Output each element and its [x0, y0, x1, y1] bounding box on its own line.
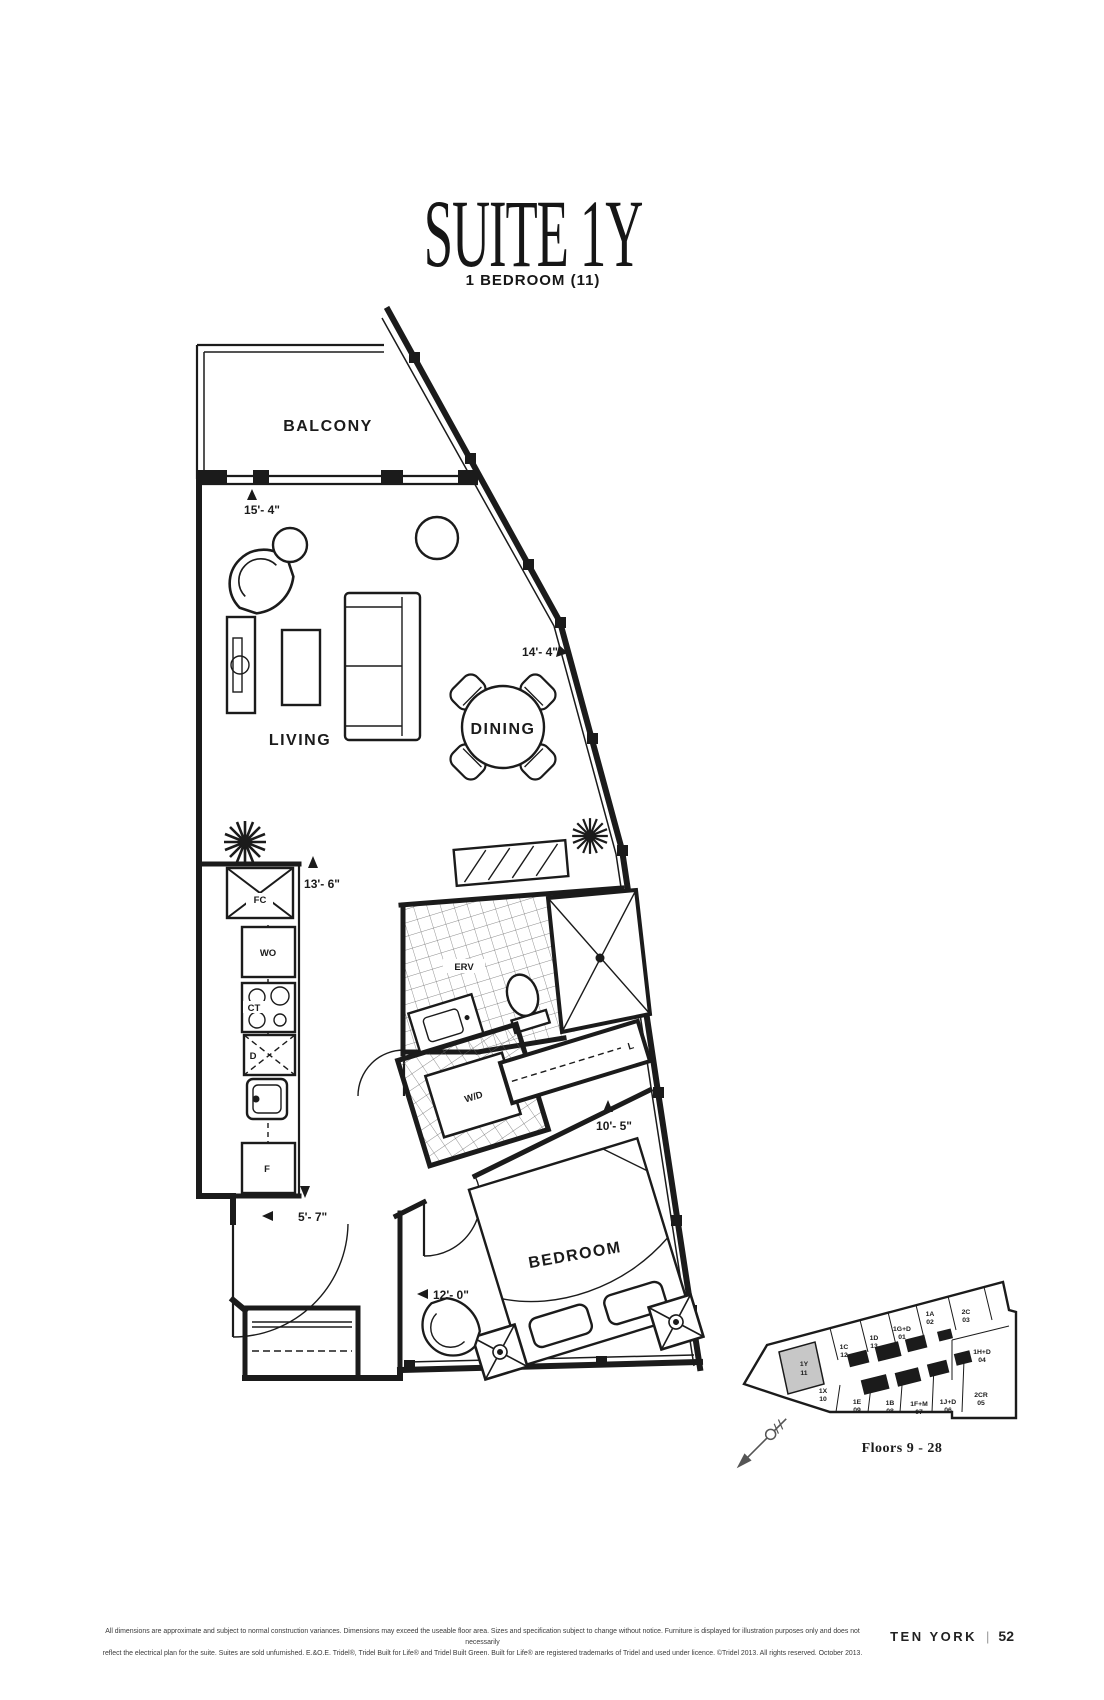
- footer-divider: |: [986, 1629, 989, 1644]
- keyplan-cell-label: 1D: [870, 1335, 879, 1342]
- keyplan-cell-label: 2C: [962, 1309, 971, 1316]
- fridge: F: [242, 1143, 295, 1193]
- keyplan-cell-num-highlight: 11: [800, 1370, 807, 1377]
- living-label: LIVING: [269, 732, 331, 749]
- keyplan-cell-label: 1A: [926, 1311, 935, 1318]
- keyplan-cell-num: 07: [915, 1409, 923, 1416]
- keyplan-cell-label: 1E: [853, 1399, 862, 1406]
- keyplan-cell-num: 01: [898, 1334, 906, 1341]
- balcony-label: BALCONY: [283, 418, 373, 435]
- coffee-table: [282, 630, 320, 705]
- balcony-area: BALCONY: [197, 345, 384, 479]
- console-shelf: [454, 840, 569, 886]
- fridge-label: F: [264, 1164, 270, 1175]
- keyplan-cell-label: 1J+D: [940, 1399, 957, 1406]
- keyplan-cell-num: 10: [819, 1396, 827, 1403]
- living-area: LIVING: [216, 517, 458, 749]
- keyplan-cell-label-highlight: 1Y: [800, 1361, 809, 1368]
- kitchen: FC WO CT D: [199, 864, 299, 1196]
- dishwasher: D: [244, 1035, 295, 1075]
- keyplan-caption: Floors 9 - 28: [862, 1441, 943, 1456]
- erv-label: ERV: [454, 962, 474, 973]
- keyplan-cell-num: 09: [853, 1407, 861, 1414]
- keyplan-cell-label: 1X: [819, 1388, 828, 1395]
- dishwasher-label: D: [250, 1051, 257, 1062]
- footer-brand: TEN YORK | 52: [890, 1628, 1014, 1644]
- foyer-closet: [245, 1308, 358, 1378]
- wall-oven: WO: [242, 927, 295, 977]
- dining-label: DINING: [471, 721, 536, 738]
- entry-foyer: [233, 1222, 358, 1378]
- sliding-door-wall: [197, 470, 478, 484]
- dim-bedroom-depth: 10'- 5": [596, 1119, 632, 1133]
- keyplan-cell-num: 06: [944, 1407, 952, 1414]
- north-arrow-icon: [733, 1415, 790, 1472]
- dim-dining: 14'- 4": [522, 645, 558, 659]
- keyplan-cell-label: 1C: [840, 1344, 849, 1351]
- plant-icon: [224, 821, 266, 863]
- brand-name: TEN YORK: [890, 1629, 977, 1644]
- wall-oven-label: WO: [260, 948, 276, 959]
- keyplan-cell-num: 12: [840, 1352, 848, 1359]
- keyplan-cell-num: 03: [962, 1317, 970, 1324]
- dim-bedroom-width: 12'- 0": [433, 1288, 469, 1302]
- page-number: 52: [998, 1628, 1014, 1644]
- cooktop-label: CT: [248, 1003, 261, 1014]
- keyplan-cell-num: 04: [978, 1357, 986, 1364]
- keyplan-cell-num: 13: [870, 1343, 878, 1350]
- keyplan-cell-label: 2CR: [974, 1392, 988, 1399]
- floorplan-drawing: BALCONY: [0, 0, 1104, 1700]
- shower: [548, 890, 650, 1032]
- cooktop: CT: [242, 983, 295, 1032]
- keyplan-cell-label: 1B: [886, 1400, 895, 1407]
- column: [416, 517, 458, 559]
- dim-foyer: 5'- 7": [298, 1210, 327, 1224]
- footer-disclaimer: All dimensions are approximate and subje…: [95, 1626, 870, 1659]
- dim-kitchen: 13'- 6": [304, 877, 340, 891]
- fan-coil-unit: FC: [227, 868, 293, 918]
- keyplan-cell-num: 08: [886, 1408, 894, 1415]
- tv-console: [227, 617, 255, 713]
- dining-area: DINING: [447, 671, 559, 783]
- dim-balcony: 15'- 4": [244, 503, 280, 517]
- keyplan-cell-num: 02: [926, 1319, 934, 1326]
- keyplan: 1C 12 1D 13 1G+D 01 1A 02 2C 03 1H+D 04 …: [733, 1282, 1016, 1472]
- kitchen-sink: [247, 1079, 287, 1119]
- disclaimer-line-1: All dimensions are approximate and subje…: [95, 1626, 870, 1648]
- keyplan-cell-label: 1H+D: [973, 1349, 991, 1356]
- keyplan-highlight-1y: [779, 1342, 824, 1394]
- plant-icon: [572, 818, 608, 854]
- keyplan-cell-label: 1F+M: [910, 1401, 928, 1408]
- side-table: [273, 528, 307, 562]
- sofa: [345, 593, 420, 740]
- keyplan-cell-num: 05: [977, 1400, 985, 1407]
- keyplan-cell-label: 1G+D: [893, 1326, 911, 1333]
- disclaimer-line-2: reflect the electrical plan for the suit…: [95, 1648, 870, 1659]
- fan-coil-label: FC: [254, 895, 267, 906]
- floorplan-page: SUITE 1Y 1 BEDROOM (11): [0, 0, 1104, 1700]
